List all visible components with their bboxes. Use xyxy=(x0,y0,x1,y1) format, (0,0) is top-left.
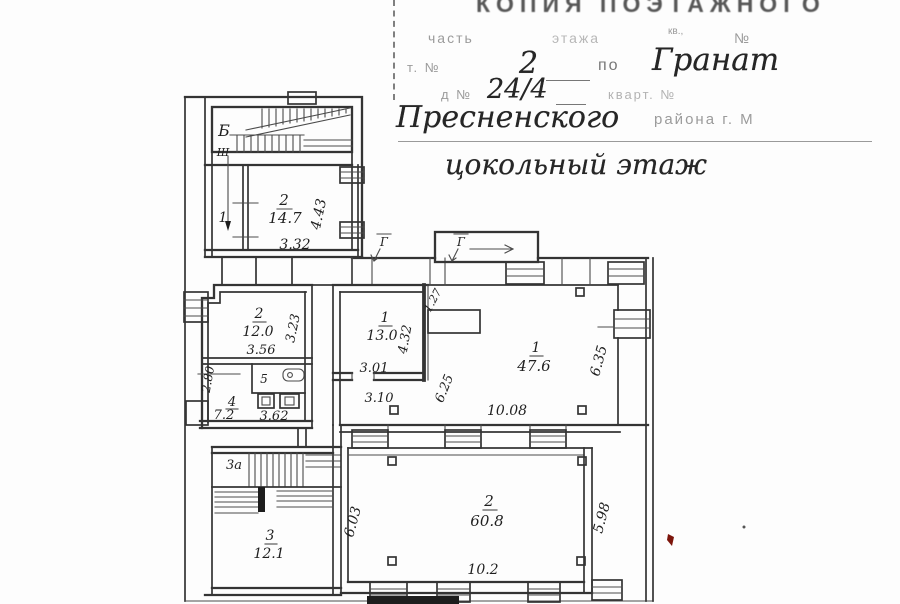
scan-black-bar xyxy=(367,596,459,604)
window-symbol xyxy=(506,262,644,284)
dim-1008: 10.08 xyxy=(487,403,527,419)
floor-plan-drawing: Б Ш 1 2 14.7 3.32 4.43 xyxy=(0,0,900,604)
room2-mid-width-dim: 3.56 xyxy=(247,343,276,358)
top-wall-band: Г Г xyxy=(352,232,648,285)
room1-upper-number: 1 xyxy=(219,210,228,226)
room4-area: 7.2 xyxy=(214,408,235,423)
room2-big-area: 60.8 xyxy=(470,512,503,530)
middle-left-block: 2 12.0 3.56 3.23 5 2.80 4 7.2 3.62 xyxy=(184,285,312,428)
room1-mid-block: 1 13.0 3.01 4.32 1.27 6.25 3.10 xyxy=(333,285,480,425)
direction-arrow xyxy=(470,245,513,253)
stair-treads-lower xyxy=(230,135,352,152)
column-marker xyxy=(388,457,586,565)
dim-625: 6.25 xyxy=(432,372,457,404)
room1-big-area: 47.6 xyxy=(516,357,551,375)
room5-number: 5 xyxy=(260,372,268,386)
stairwell-label: Б xyxy=(217,121,230,140)
room3-area: 12.1 xyxy=(253,546,284,562)
room2-big-height-left-dim: 6.03 xyxy=(341,505,365,539)
room3-number: 3 xyxy=(266,528,275,544)
room2-upper-number: 2 xyxy=(278,191,289,209)
hatched-wall xyxy=(222,257,256,285)
upper-left-block: Б Ш 1 2 14.7 3.32 4.43 xyxy=(185,92,364,257)
window-symbol xyxy=(598,310,650,338)
room2-mid-area: 12.0 xyxy=(242,324,273,340)
room1-mid-width-dim: 3.01 xyxy=(360,361,389,376)
room1-mid-area: 13.0 xyxy=(366,328,397,344)
room2-big-height-right-dim: 5.98 xyxy=(590,501,614,535)
section-marker-left: Г xyxy=(379,235,389,249)
room2-mid-height-dim: 3.23 xyxy=(283,313,304,344)
scanned-floorplan-document: КОПИЯ ПОЭТАЖНОГО часть этажа кв., № т. №… xyxy=(0,0,900,604)
room4-width-dim: 3.62 xyxy=(260,409,289,424)
column-marker xyxy=(390,288,586,414)
stair-treads-3a xyxy=(249,453,303,487)
hatched-wall xyxy=(292,257,352,285)
room2-upper-width-dim: 3.32 xyxy=(279,237,310,253)
entry-steps xyxy=(306,455,340,467)
ink-dot xyxy=(743,526,746,529)
room2-big-block: 2 60.8 10.2 6.03 5.98 xyxy=(341,425,622,602)
room2-big-number: 2 xyxy=(483,492,494,510)
room1-mid-height-dim: 4.32 xyxy=(395,324,415,356)
section-marker-right: Г xyxy=(456,235,466,249)
red-ink-speck xyxy=(667,534,674,546)
bottom-left-block: 3а 3 12.1 xyxy=(205,447,341,595)
duct-projection xyxy=(428,310,480,333)
room3a-number: 3а xyxy=(226,458,242,473)
room1-big-height-dim: 6.35 xyxy=(587,344,611,378)
stair-flights xyxy=(215,491,333,513)
bathtub-icon xyxy=(283,369,304,381)
middle-wall-band xyxy=(340,425,648,448)
dim-310: 3.10 xyxy=(365,391,394,406)
room2-upper-area: 14.7 xyxy=(268,209,302,227)
room2-big-width-dim: 10.2 xyxy=(467,562,498,578)
room2-upper-height-dim: 4.43 xyxy=(308,197,330,232)
stair-center-wall xyxy=(258,487,265,512)
room1-big-number: 1 xyxy=(532,340,541,356)
fixture-icon xyxy=(258,394,299,408)
room1-mid-number: 1 xyxy=(381,310,390,326)
entry-label: Ш xyxy=(216,146,230,159)
room2-mid-number: 2 xyxy=(254,306,264,322)
bathtub-drain-icon xyxy=(288,373,293,378)
window-symbol xyxy=(184,292,208,322)
